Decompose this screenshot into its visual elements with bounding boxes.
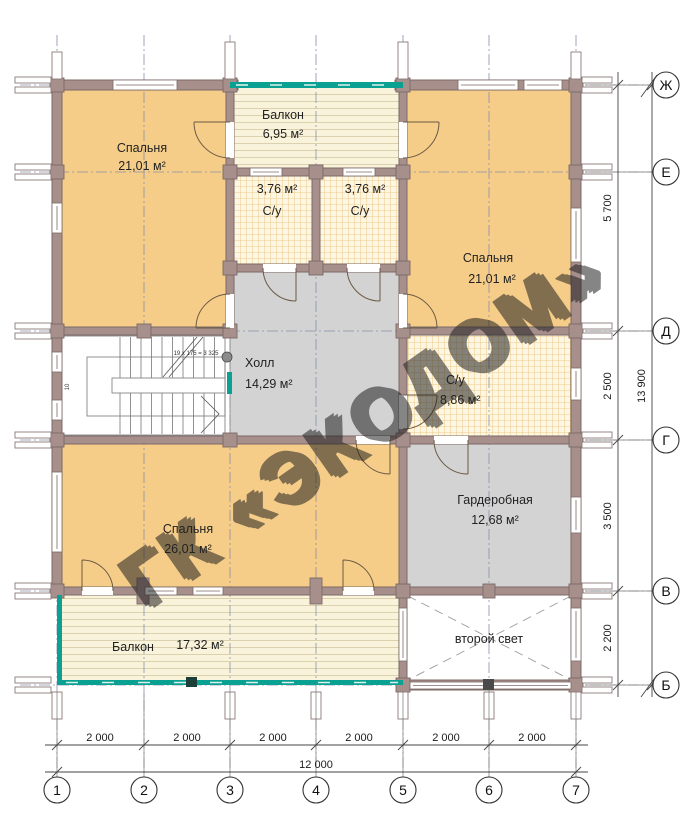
label-balcony-b-area: 17,32 м²	[176, 638, 224, 652]
label-bedroom-tr: Спальня	[463, 251, 513, 265]
label-balcony-b: Балкон	[112, 640, 154, 654]
dim-right-4: 2 200	[602, 624, 614, 652]
window	[52, 400, 62, 420]
dim-right-1: 5 700	[602, 194, 614, 222]
label-hall-area: 14,29 м²	[245, 377, 293, 391]
window	[571, 497, 581, 533]
railing-post	[186, 677, 197, 687]
axis-col-7: 7	[572, 782, 580, 798]
axis-row-zh: Ж	[660, 77, 673, 93]
label-bedroom-tl: Спальня	[117, 141, 167, 155]
dim-bottom-1: 2 000	[86, 732, 114, 744]
window	[113, 80, 177, 90]
dim-bottom-6: 2 000	[518, 732, 546, 744]
floor-plan-page: 19 x 175 = 3 325 10	[0, 0, 700, 835]
dim-bottom-2: 2 000	[173, 732, 201, 744]
axis-col-6: 6	[485, 782, 493, 798]
axis-row-g: Г	[662, 432, 670, 448]
axis-row-b: Б	[661, 677, 670, 693]
void-railing-post	[483, 679, 494, 690]
axis-row-e: Е	[661, 164, 670, 180]
axis-row-v: В	[661, 583, 670, 599]
dim-bottom-3: 2 000	[259, 732, 287, 744]
label-balcony-top: Балкон	[262, 108, 304, 122]
stair-landing-step-number: 10	[65, 383, 71, 390]
label-bath-right-area: 3,76 м²	[345, 182, 386, 196]
room-balcony-top	[230, 85, 403, 172]
stair-annotation: 19 x 175 = 3 325	[174, 351, 220, 357]
dim-right-total: 13 900	[636, 369, 648, 403]
dim-right-2: 2 500	[602, 372, 614, 400]
stair-handrail	[112, 378, 225, 393]
void-glazing-left	[399, 608, 407, 661]
wall-col-4-baths	[312, 172, 320, 268]
window	[343, 168, 375, 176]
stair-railing-teal	[227, 372, 232, 394]
void-glazing-right	[571, 608, 581, 661]
axis-col-5: 5	[399, 782, 407, 798]
label-wardrobe: Гардеробная	[457, 493, 533, 507]
axis-col-1: 1	[53, 782, 61, 798]
window	[458, 80, 518, 90]
window	[250, 168, 282, 176]
axis-col-4: 4	[312, 782, 320, 798]
window	[52, 203, 62, 233]
window	[524, 80, 562, 90]
dim-bottom-4: 2 000	[345, 732, 373, 744]
railing-left-balcony-b	[57, 595, 62, 685]
label-balcony-top-area: 6,95 м²	[263, 127, 304, 141]
dim-bottom-total: 12 000	[299, 759, 333, 771]
label-bath-left: С/у	[263, 204, 283, 218]
label-bedroom-tl-area: 21,01 м²	[118, 159, 166, 173]
axis-bubbles-bottom: 1 2 3 4 5 6 7	[44, 777, 589, 803]
axis-col-2: 2	[140, 782, 148, 798]
axis-col-3: 3	[226, 782, 234, 798]
window	[571, 368, 581, 400]
window	[52, 472, 62, 552]
label-void: второй свет	[455, 632, 524, 646]
dim-bottom-5: 2 000	[432, 732, 460, 744]
window	[52, 352, 62, 372]
label-hall: Холл	[245, 356, 274, 370]
floor-plan-drawing: 19 x 175 = 3 325 10	[0, 0, 700, 835]
stair-newel-post	[222, 352, 232, 362]
label-bath-right: С/у	[351, 204, 371, 218]
label-bath-left-area: 3,76 м²	[257, 182, 298, 196]
dim-right-3: 3 500	[602, 502, 614, 530]
axis-row-d: Д	[661, 323, 671, 339]
label-wardrobe-area: 12,68 м²	[471, 513, 519, 527]
